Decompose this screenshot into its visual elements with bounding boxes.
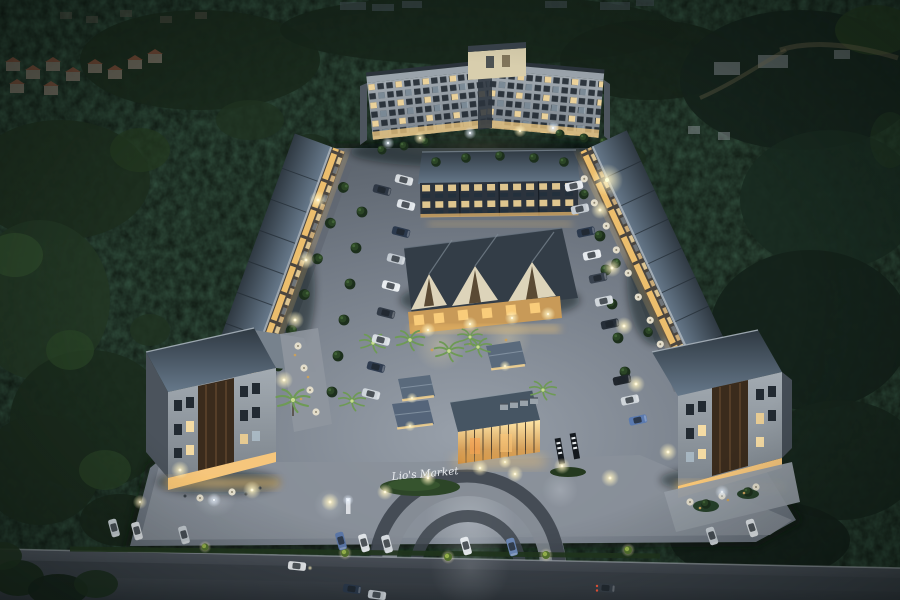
vignette-overlay bbox=[0, 0, 900, 600]
aerial-night-render: Lio's Market bbox=[0, 0, 900, 600]
render-canvas: Lio's Market bbox=[0, 0, 900, 600]
